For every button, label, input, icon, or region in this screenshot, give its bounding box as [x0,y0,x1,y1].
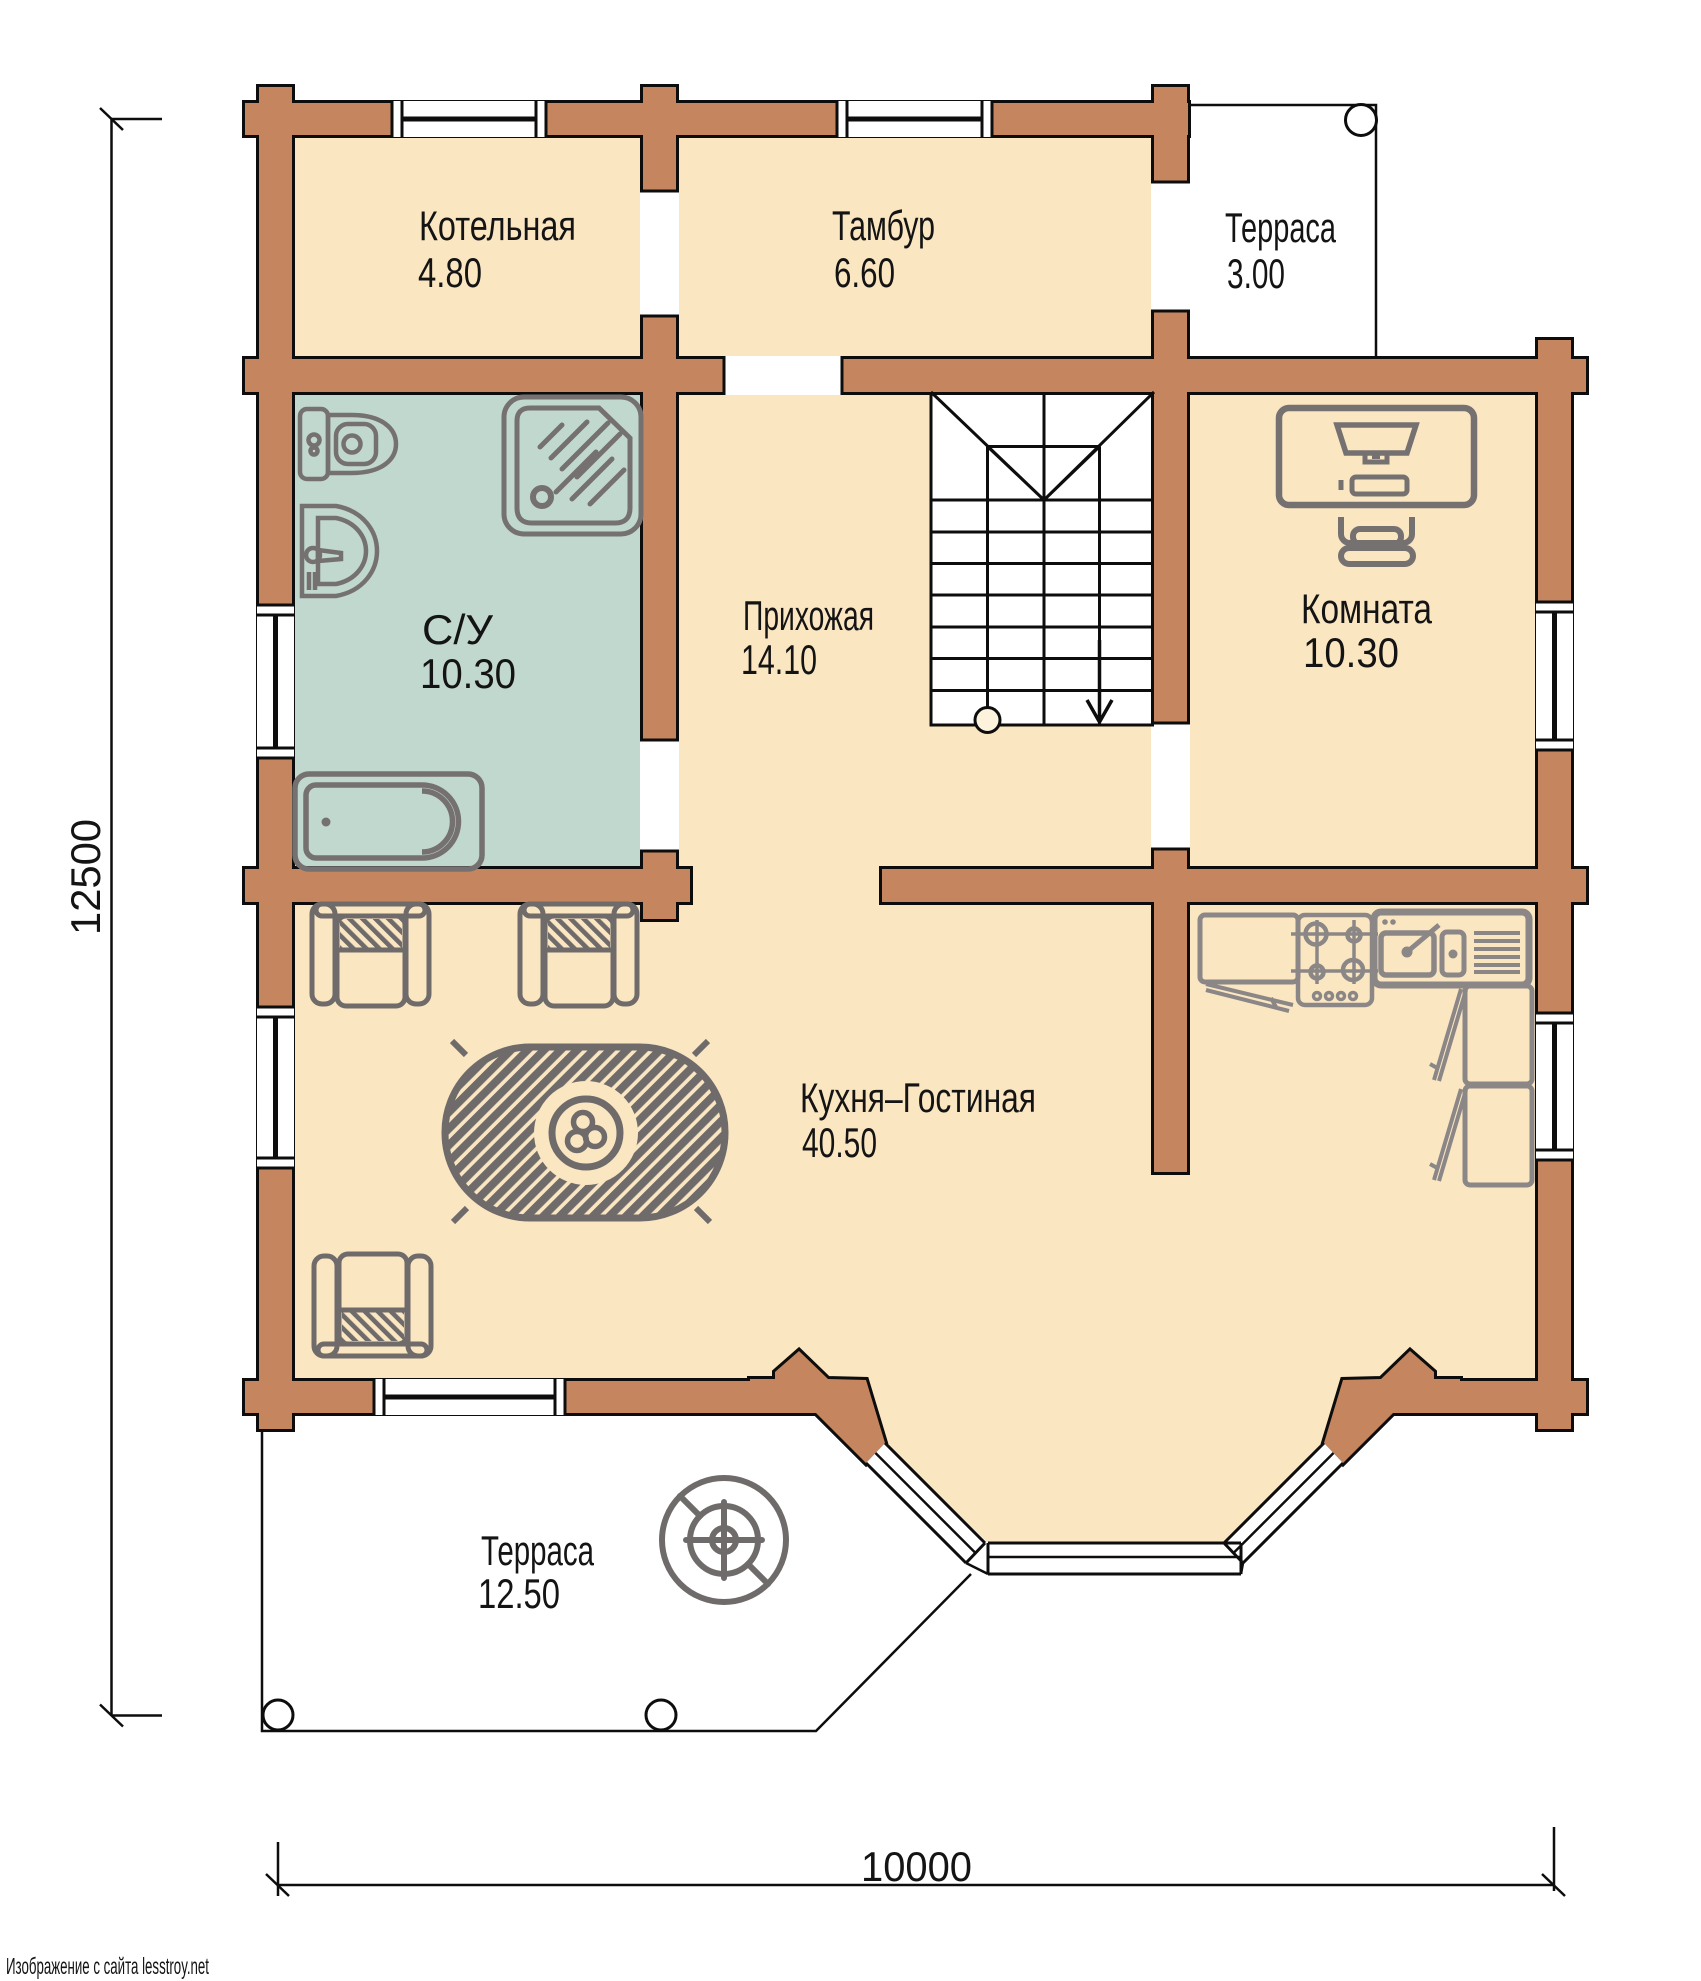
svg-text:40.50: 40.50 [802,1119,877,1166]
svg-text:10.30: 10.30 [420,650,516,697]
svg-text:Комната: Комната [1301,585,1433,632]
svg-text:Терраса: Терраса [1225,204,1336,251]
svg-text:10.30: 10.30 [1303,629,1399,676]
svg-text:Изображение с сайта lesstroy.n: Изображение с сайта lesstroy.net [6,1953,209,1979]
svg-text:12500: 12500 [62,819,109,935]
svg-text:Прихожая: Прихожая [743,592,874,639]
svg-text:С/У: С/У [422,606,493,653]
svg-text:Котельная: Котельная [419,202,576,249]
svg-text:12.50: 12.50 [478,1570,560,1617]
svg-text:Тамбур: Тамбур [832,202,935,249]
svg-text:14.10: 14.10 [741,636,817,683]
svg-text:Кухня–Гостиная: Кухня–Гостиная [800,1074,1036,1121]
svg-text:Терраса: Терраса [481,1527,594,1574]
svg-text:4.80: 4.80 [418,249,482,296]
svg-text:6.60: 6.60 [834,249,895,296]
svg-text:10000: 10000 [861,1843,972,1890]
svg-text:3.00: 3.00 [1227,250,1285,297]
